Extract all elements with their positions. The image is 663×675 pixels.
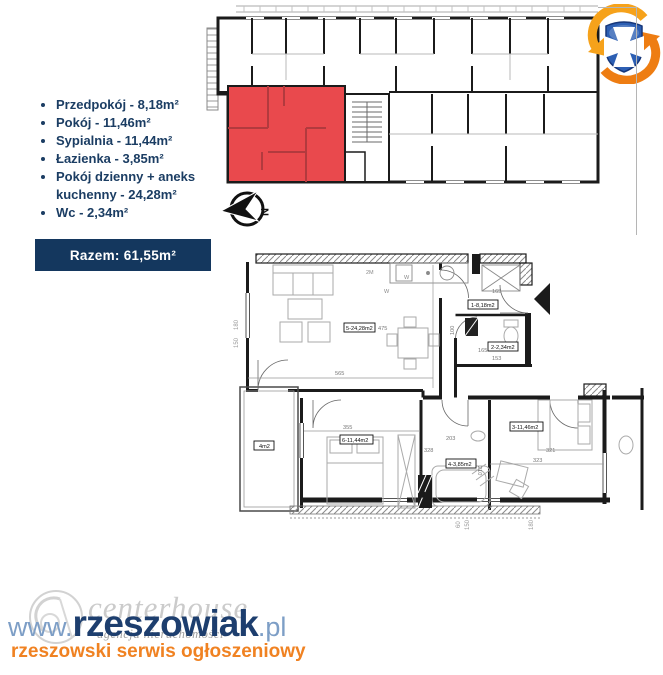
svg-text:165: 165 xyxy=(478,348,487,354)
entrance-arrow-icon xyxy=(534,283,550,315)
svg-text:150: 150 xyxy=(234,337,240,348)
bottom-slab xyxy=(290,506,542,518)
label-hall: 1-8,18m2 xyxy=(471,303,495,309)
wall-left xyxy=(246,262,250,390)
site-watermark-url: www.rzeszowiak.pl xyxy=(8,603,286,645)
url-tld: .pl xyxy=(258,612,287,642)
svg-text:153: 153 xyxy=(492,356,501,362)
svg-text:355: 355 xyxy=(343,425,352,431)
total-area-label: Razem: 61,55m² xyxy=(70,248,176,263)
room-list-item: Wc - 2,34m² xyxy=(56,204,244,222)
kitchen xyxy=(390,263,520,291)
label-balcony: 4m2 xyxy=(259,444,270,450)
label-wc: 2-2,34m2 xyxy=(491,345,515,351)
roof-edge xyxy=(236,6,598,12)
dimension-texts: 475 565 355 328 321 323 210 203 165 100 … xyxy=(234,289,555,530)
label-bedroom: 6-11,44m2 xyxy=(342,438,368,444)
svg-text:475: 475 xyxy=(378,326,387,332)
kitchen-mark: 2M xyxy=(366,270,374,276)
url-name: rzeszowiak xyxy=(73,603,258,644)
svg-text:150: 150 xyxy=(465,519,471,530)
svg-text:328: 328 xyxy=(424,448,433,454)
svg-text:60: 60 xyxy=(456,521,462,528)
shield-icon xyxy=(604,22,644,72)
balcony-strip xyxy=(207,28,218,110)
city-emblem-logo xyxy=(586,4,662,84)
svg-text:180: 180 xyxy=(529,519,535,530)
washer-mark: W xyxy=(404,275,410,281)
total-area-badge: Razem: 61,55m² xyxy=(35,239,211,271)
svg-text:210: 210 xyxy=(476,466,482,475)
label-room: 3-11,46m2 xyxy=(512,425,538,431)
svg-text:321: 321 xyxy=(546,448,555,454)
svg-text:165: 165 xyxy=(492,289,501,295)
north-letter: N xyxy=(258,208,270,216)
site-watermark-tagline: rzeszowski serwis ogłoszeniowy xyxy=(11,641,306,663)
label-living: 5-24,28m2 xyxy=(346,326,373,332)
windows-top xyxy=(246,17,564,20)
svg-text:323: 323 xyxy=(533,458,542,464)
svg-text:100: 100 xyxy=(450,326,456,335)
living-furniture xyxy=(273,265,439,369)
svg-text:180: 180 xyxy=(234,319,240,330)
svg-text:565: 565 xyxy=(335,371,344,377)
apartment-highlight xyxy=(228,86,345,182)
stairwell xyxy=(345,94,389,182)
plan-edge-line-vertical xyxy=(636,7,637,235)
bedroom-furniture xyxy=(327,435,415,508)
label-bath: 4-3,85m2 xyxy=(448,462,472,468)
apartment-floor-plan: 2M W W xyxy=(232,238,644,534)
svg-text:203: 203 xyxy=(446,436,455,442)
wc-fixtures xyxy=(465,318,518,345)
url-prefix: www. xyxy=(8,612,73,642)
building-overview-plan xyxy=(206,2,602,190)
plan-edge-line-horizontal xyxy=(598,7,637,8)
shaft xyxy=(418,475,432,508)
listing-flyer: Przedpokój - 8,18m² Pokój - 11,46m² Sypi… xyxy=(0,0,663,675)
north-arrow-icon: N xyxy=(219,182,277,234)
sink-mark: W xyxy=(384,289,390,295)
